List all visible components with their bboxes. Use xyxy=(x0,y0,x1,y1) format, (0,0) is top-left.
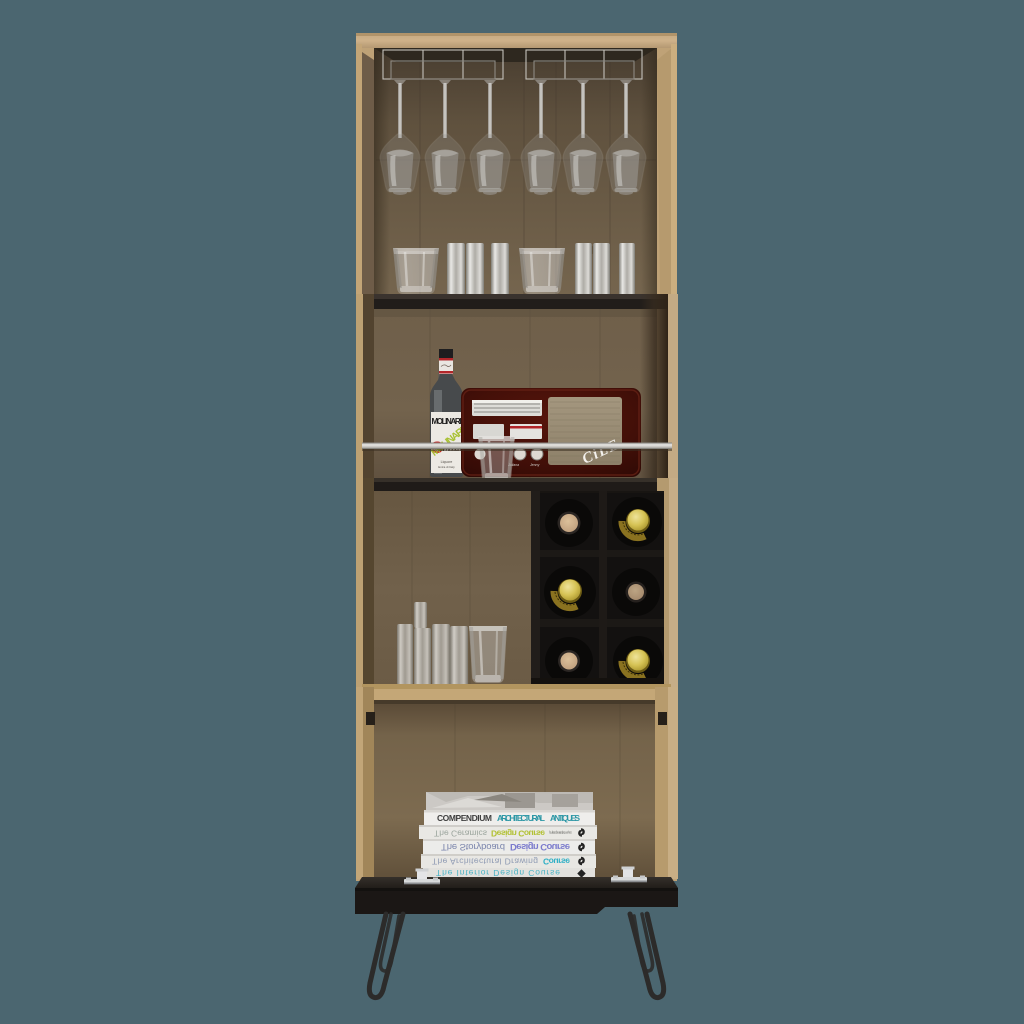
svg-text:Course: Course xyxy=(543,857,570,867)
svg-text:Liquore: Liquore xyxy=(441,460,453,464)
svg-text:Extra di Italy: Extra di Italy xyxy=(438,465,455,469)
svg-text:Design Course: Design Course xyxy=(491,829,545,839)
svg-text:principles | practice | techni: principles | practice | techniques xyxy=(549,831,572,836)
svg-text:The Interior Design Course: The Interior Design Course xyxy=(436,868,560,878)
svg-text:The Architectural Drawing: The Architectural Drawing xyxy=(432,857,538,867)
svg-text:Design Course: Design Course xyxy=(510,841,570,852)
svg-text:ARCHITECTURAL: ARCHITECTURAL xyxy=(497,813,545,823)
svg-text:The Storyboard: The Storyboard xyxy=(441,841,505,852)
svg-text:COMPENDIUM: COMPENDIUM xyxy=(437,813,492,823)
svg-text:The Ceramics: The Ceramics xyxy=(434,829,487,839)
svg-text:Jenny: Jenny xyxy=(529,463,540,467)
svg-text:MOLINARI: MOLINARI xyxy=(432,417,462,426)
svg-text:ANTIQUES: ANTIQUES xyxy=(550,813,580,823)
